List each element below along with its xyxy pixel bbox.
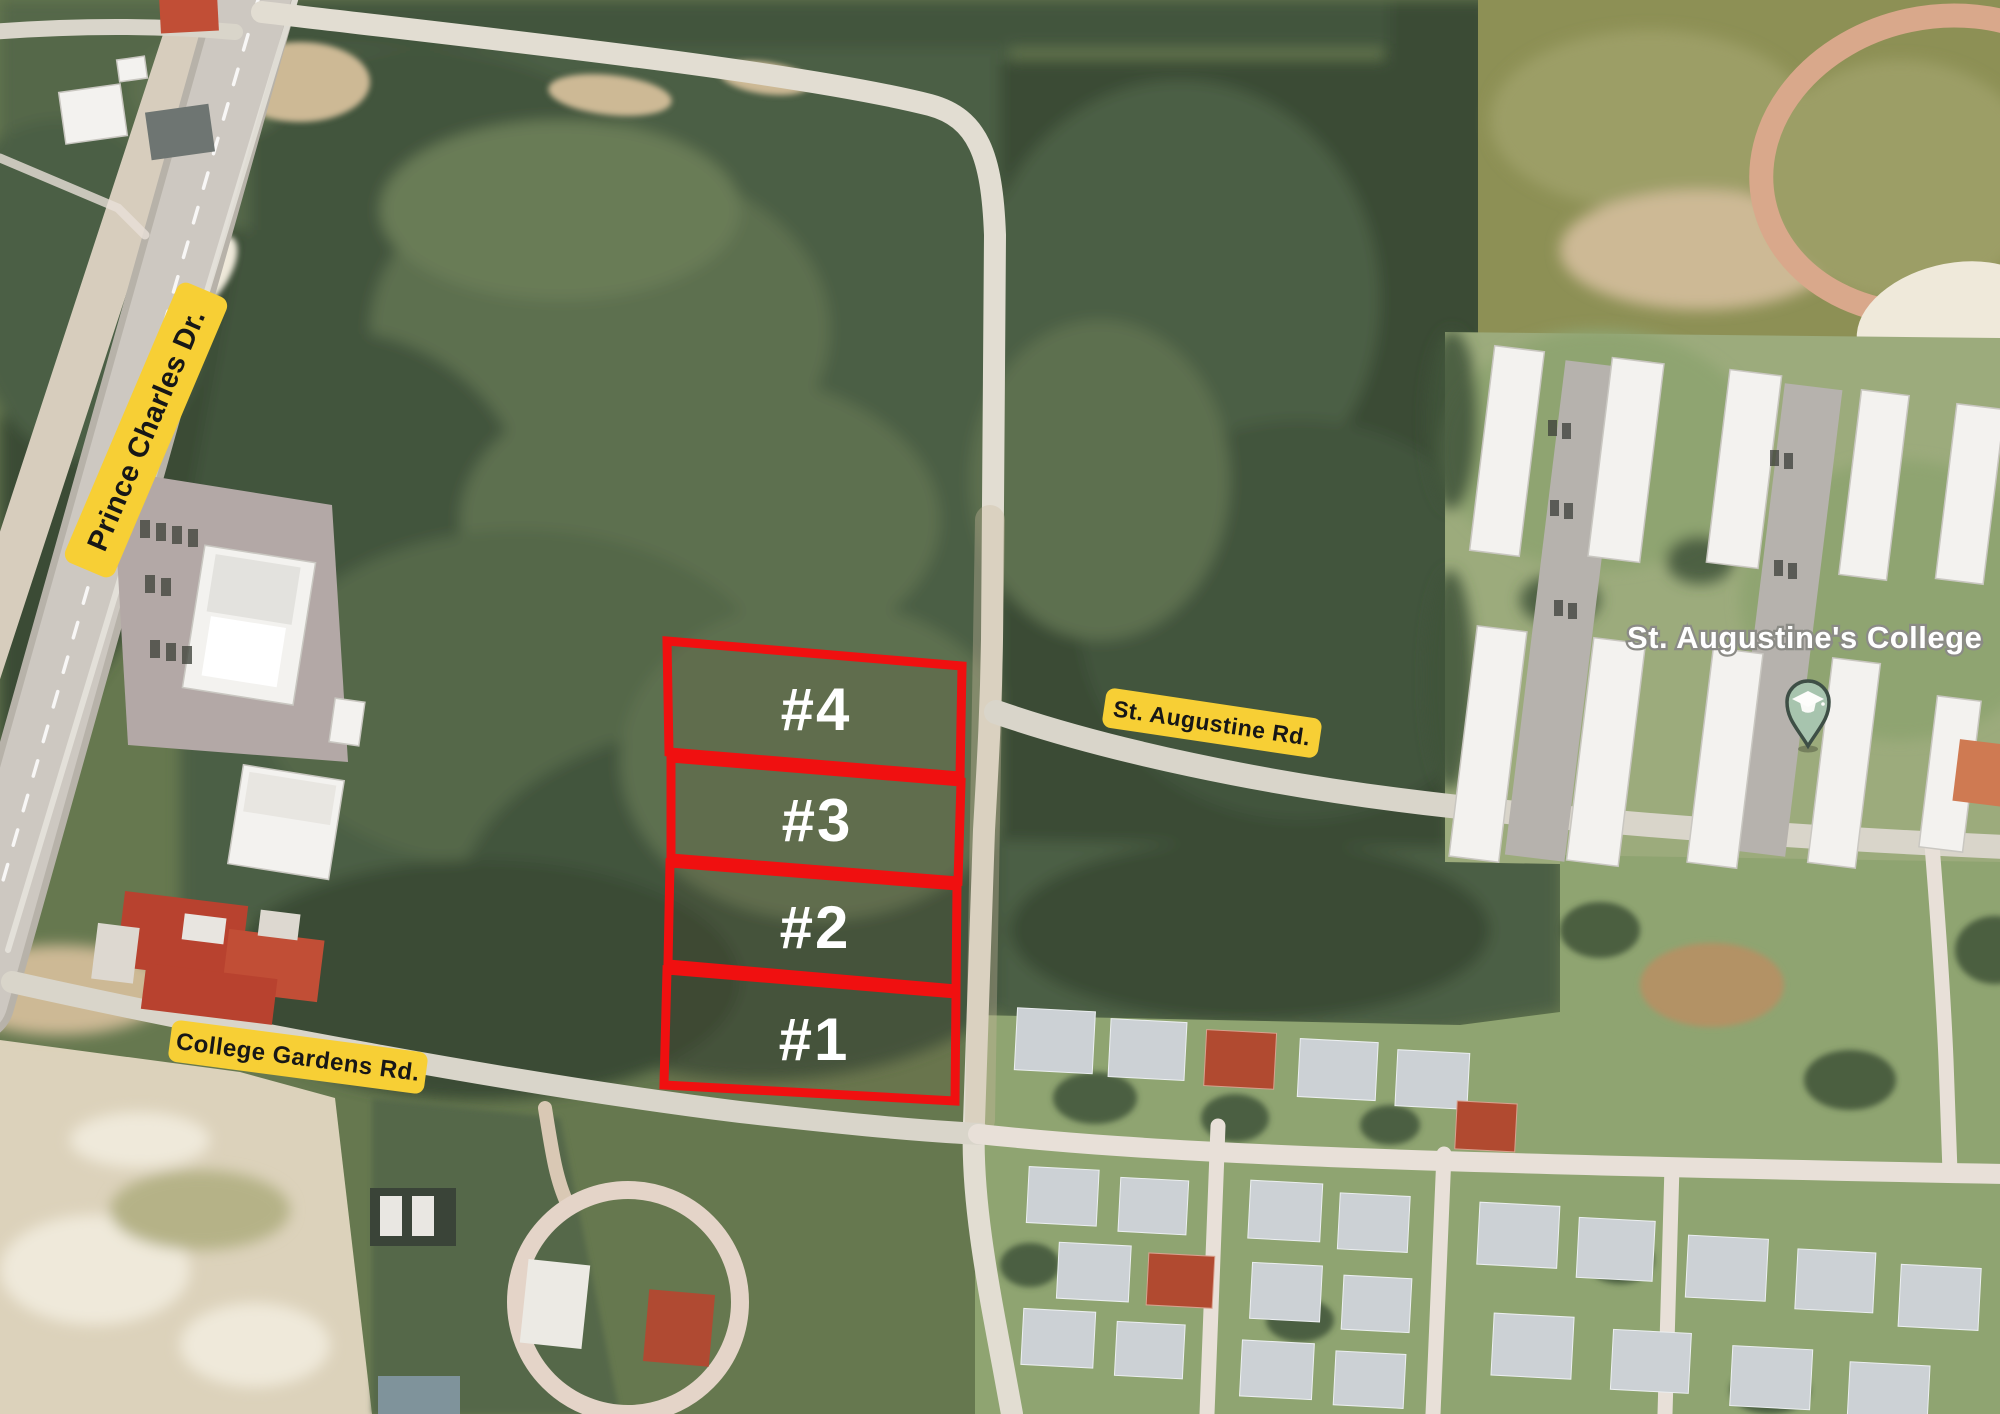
red-house — [643, 1289, 715, 1366]
lot-2-label: #2 — [780, 894, 851, 961]
lot-4-label: #4 — [781, 676, 852, 743]
dirt-patch — [1640, 943, 1784, 1027]
orange-roof-building — [1952, 739, 2000, 807]
blue-roof-house — [378, 1376, 460, 1414]
office-building — [182, 545, 315, 705]
dark-building — [370, 1188, 456, 1246]
lot-overlays: #4 #3 #2 #1 — [664, 641, 962, 1101]
lot-3-label: #3 — [782, 787, 853, 854]
lot-1-label: #1 — [779, 1006, 850, 1073]
annotated-aerial-map: #4 #3 #2 #1 Prince Charles Dr. St. Augus… — [0, 0, 2000, 1414]
driveway-cars — [520, 1259, 590, 1349]
warehouse-building — [228, 765, 344, 880]
place-label-college: St. Augustine's College — [1627, 620, 1982, 655]
